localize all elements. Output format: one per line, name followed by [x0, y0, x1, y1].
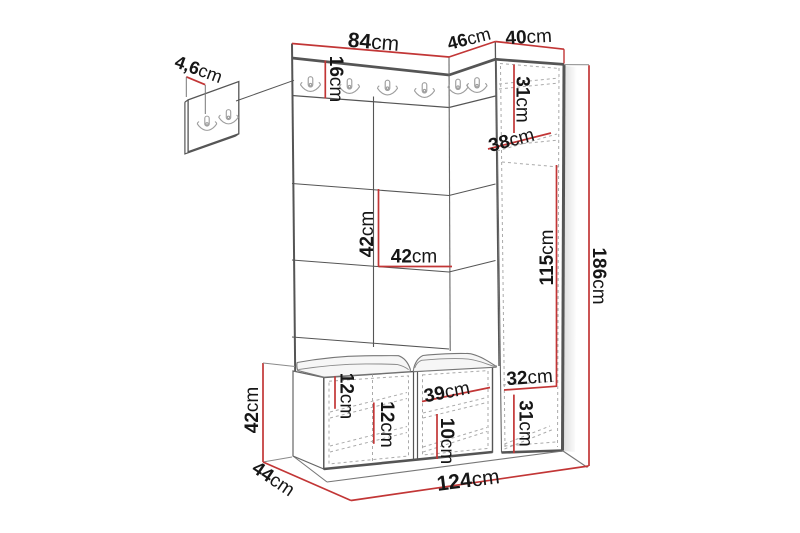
svg-text:115cm: 115cm [537, 230, 558, 286]
svg-text:40cm: 40cm [505, 26, 553, 49]
svg-text:84cm: 84cm [347, 29, 400, 56]
svg-text:31cm: 31cm [515, 400, 536, 446]
svg-text:186cm: 186cm [588, 247, 609, 304]
svg-text:12cm: 12cm [336, 373, 357, 419]
svg-text:16cm: 16cm [325, 56, 346, 102]
svg-text:42cm: 42cm [391, 247, 437, 268]
svg-text:10cm: 10cm [436, 418, 457, 464]
svg-text:12cm: 12cm [376, 401, 397, 447]
svg-text:31cm: 31cm [512, 76, 533, 122]
svg-text:42cm: 42cm [242, 387, 263, 433]
svg-text:42cm: 42cm [357, 211, 378, 257]
svg-text:32cm: 32cm [506, 366, 554, 390]
